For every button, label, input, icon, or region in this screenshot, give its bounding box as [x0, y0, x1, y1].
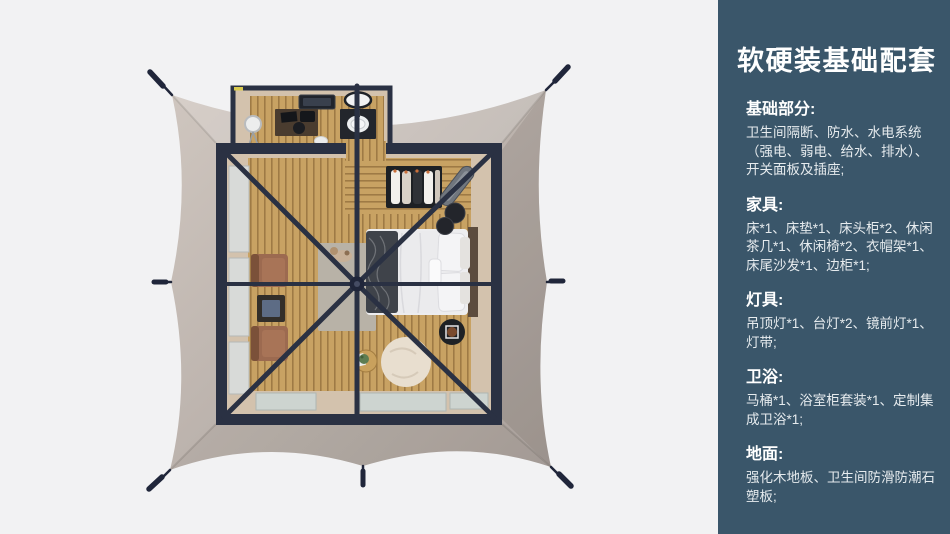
furnishing-spec-panel: 软硬装基础配套 基础部分: 卫生间隔断、防水、水电系统 （强电、弱电、给水、排水…: [718, 0, 950, 534]
glass-doors: [256, 393, 488, 411]
bathroom-annex: [233, 87, 390, 148]
bed: [366, 227, 478, 317]
section-furniture: 家具: 床*1、床垫*1、床头柜*2、休闲 茶几*1、休闲椅*2、衣帽架*1、 …: [746, 196, 938, 276]
center-pole-hub: [350, 277, 365, 292]
section-bathroom: 卫浴: 马桶*1、浴室柜套装*1、定制集 成卫浴*1;: [746, 368, 938, 429]
bean-bag: [381, 337, 431, 387]
coffee-table: [257, 295, 285, 322]
furnishing-spec-slide: { "palette": { "page-bg": "#f2f2f3", "pa…: [0, 0, 950, 534]
tray-table: [439, 319, 465, 345]
section-furniture-heading: 家具:: [746, 196, 938, 215]
section-basic-heading: 基础部分:: [746, 100, 938, 119]
section-furniture-body: 床*1、床垫*1、床头柜*2、休闲 茶几*1、休闲椅*2、衣帽架*1、 床尾沙发…: [746, 220, 938, 276]
section-flooring-body: 强化木地板、卫生间防滑防潮石 塑板;: [746, 469, 938, 506]
section-bathroom-body: 马桶*1、浴室柜套装*1、定制集 成卫浴*1;: [746, 392, 938, 429]
section-flooring-heading: 地面:: [746, 445, 938, 464]
section-lighting-body: 吊顶灯*1、台灯*2、镜前灯*1、 灯带;: [746, 315, 938, 352]
tape-marker: [234, 87, 243, 91]
section-lighting: 灯具: 吊顶灯*1、台灯*2、镜前灯*1、 灯带;: [746, 291, 938, 352]
section-lighting-heading: 灯具:: [746, 291, 938, 310]
left-window-panels: [229, 166, 249, 394]
tent-floorplan-svg: [0, 0, 718, 534]
section-bathroom-heading: 卫浴:: [746, 368, 938, 387]
section-basic: 基础部分: 卫生间隔断、防水、水电系统 （强电、弱电、给水、排水）、 开关面板及…: [746, 100, 938, 180]
tent-top-view-render: [0, 0, 718, 534]
panel-title: 软硬装基础配套: [737, 46, 938, 77]
section-flooring: 地面: 强化木地板、卫生间防滑防潮石 塑板;: [746, 445, 938, 506]
clothes-rack: [386, 166, 442, 208]
section-basic-body: 卫生间隔断、防水、水电系统 （强电、弱电、给水、排水）、 开关面板及插座;: [746, 124, 938, 180]
bathroom-vanity-desk: [275, 109, 318, 136]
